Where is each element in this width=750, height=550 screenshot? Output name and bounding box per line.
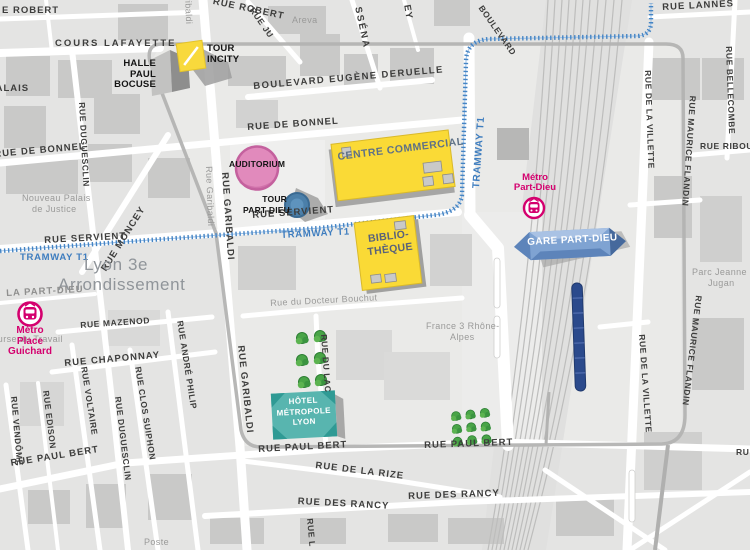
tramway-t1-label-center: TRAMWAY T1 <box>281 227 350 240</box>
tour-part-dieu-label: TOUR PART-DIEU <box>243 194 287 215</box>
street-label-rue-lannes: RUE LANNES <box>662 0 734 12</box>
street-label-rue-du-lac: RUE DU LAC <box>320 334 333 393</box>
street-label-rue-duguesclin-north: RUE DUGUESCLIN <box>78 102 91 187</box>
street-label-rue-de-bonnel: RUE DE BONNEL <box>247 117 339 133</box>
street-label-rue-de-la-villette-north: RUE DE LA VILLETTE <box>644 70 656 169</box>
street-label-rue-edison: RUE EDISON <box>42 390 58 450</box>
street-label-rue-des-rancy-west: RUE DES RANCY <box>298 497 390 511</box>
street-label-rue-garibaldi-north: RUE GARIBALDI <box>220 172 236 261</box>
street-label-rue-riboul: RUE RIBOU <box>700 142 750 151</box>
area-label-palais-justice-line1: Nouveau Palais <box>22 194 91 203</box>
street-label-fragment-rue-l: RUE L <box>306 518 317 547</box>
area-label-parc-jugan-line2: Jugan <box>708 279 735 288</box>
street-label-rue-bellecombe: RUE BELLECOMBE <box>725 46 737 134</box>
hotel-metropole-label: HÔTEL MÉTROPOLE LYON <box>271 395 337 430</box>
street-label-boulevard-vivier-merle: BOULEVARD <box>477 4 518 57</box>
area-label-france3-line1: France 3 Rhône- <box>426 322 500 331</box>
tramway-t1-label-vertical: TRAMWAY T1 <box>472 116 487 189</box>
incity-label-line1: TOUR <box>207 43 239 54</box>
street-label-rue-ney: EY <box>402 4 414 20</box>
bibliotheque-label: BIBLIO- THÈQUE <box>360 227 419 259</box>
metro-place-guichard-label: Métro Place Guichard <box>2 326 58 358</box>
area-label-parc-jugan-line1: Parc Jeanne <box>692 268 747 277</box>
metro-part-dieu-label: Métro Part-Dieu <box>503 173 567 193</box>
street-label-rue-maurice-flandin-south: RUE MAURICE FLANDIN <box>681 295 703 406</box>
incity-label-line2: INCITY <box>207 54 239 65</box>
area-label-poste: Poste <box>144 538 169 547</box>
metro-guichard-line3: Guichard <box>2 347 58 358</box>
street-label-rue-de-bonnel-west: RUE DE BONNEL <box>0 142 86 159</box>
street-label-bd-deruelle: BOULEVARD EUGÈNE DERUELLE <box>253 65 444 91</box>
area-label-france3-line2: Alpes <box>450 333 475 342</box>
street-label-rue-des-rancy-east: RUE DES RANCY <box>408 489 500 502</box>
street-label-rue-garibaldi-small-north: Rue Garibaldi <box>182 0 193 25</box>
centre-commercial-label: CENTRE COMMERCIAL <box>337 137 464 163</box>
gare-part-dieu-label: GARE PART-DIEU <box>527 233 615 248</box>
area-label-areva: Areva <box>292 16 318 25</box>
tramway-t1-label-west: TRAMWAY T1 <box>20 253 89 263</box>
street-label-rue-de-la-rize: RUE DE LA RIZE <box>315 461 405 481</box>
part-dieu-district-map: E ROBERT RUE ROBERT RUE JU SSÉNA EY Arev… <box>0 0 750 550</box>
metro-guichard-line1: Métro <box>2 326 58 337</box>
tour-incity-label: TOUR INCITY <box>207 43 239 65</box>
street-label-rue-andre-philip: RUE ANDRÉ PHILIP <box>176 320 198 410</box>
area-label-la-part-dieu: LA PART-DIEU <box>6 285 84 299</box>
street-label-rue-mazenod: RUE MAZENOD <box>80 316 150 329</box>
halle-label-line1: HALLE <box>112 59 156 70</box>
street-label-rue-voltaire: RUE VOLTAIRE <box>80 366 99 436</box>
street-label-rue-chaponnay: RUE CHAPONNAY <box>64 351 161 369</box>
street-label-palais: PALAIS <box>0 84 29 94</box>
street-label-rue-maurice-flandin-north: RUE MAURICE FLANDIN <box>681 95 697 206</box>
street-label-rue-docteur-bouchut: Rue du Docteur Bouchut <box>270 293 378 308</box>
halle-label-line3: BOCUSE <box>112 80 156 91</box>
street-label-rue-duguesclin-south: RUE DUGUESCLIN <box>114 396 133 481</box>
street-label-rue-garibaldi-south: RUE GARIBALDI <box>236 345 255 434</box>
tour-part-dieu-label-line2: PART-DIEU <box>243 205 287 216</box>
street-label-rue-clos-suiphon: RUE CLOS SUIPHON <box>134 366 157 461</box>
street-label-rue-paul-bert-east: RUE PAUL BERT <box>424 438 513 451</box>
street-label-rue-paul-bert-center: RUE PAUL BERT <box>258 440 348 454</box>
street-label-rue-massena: SSÉNA <box>353 6 371 50</box>
tour-part-dieu-label-line1: TOUR <box>243 194 287 205</box>
auditorium-label: AUDITORIUM <box>229 160 285 169</box>
area-label-palais-justice-line2: de Justice <box>32 205 77 214</box>
street-label-fragment-ru: RU <box>736 448 749 457</box>
street-label-rue-de-la-villette-south: RUE DE LA VILLETTE <box>638 334 653 433</box>
street-label-cours-lafayette: COURS LAFAYETTE <box>55 39 177 49</box>
metro-part-dieu-line2: Part-Dieu <box>503 183 567 193</box>
street-label-rue-robert-west: E ROBERT <box>2 6 59 16</box>
area-label-lyon3-line1: Lyon 3e <box>84 256 148 273</box>
halle-paul-bocuse-label: HALLE PAUL BOCUSE <box>112 59 156 91</box>
street-label-rue-garibaldi-small: Rue Garibaldi <box>204 166 215 227</box>
